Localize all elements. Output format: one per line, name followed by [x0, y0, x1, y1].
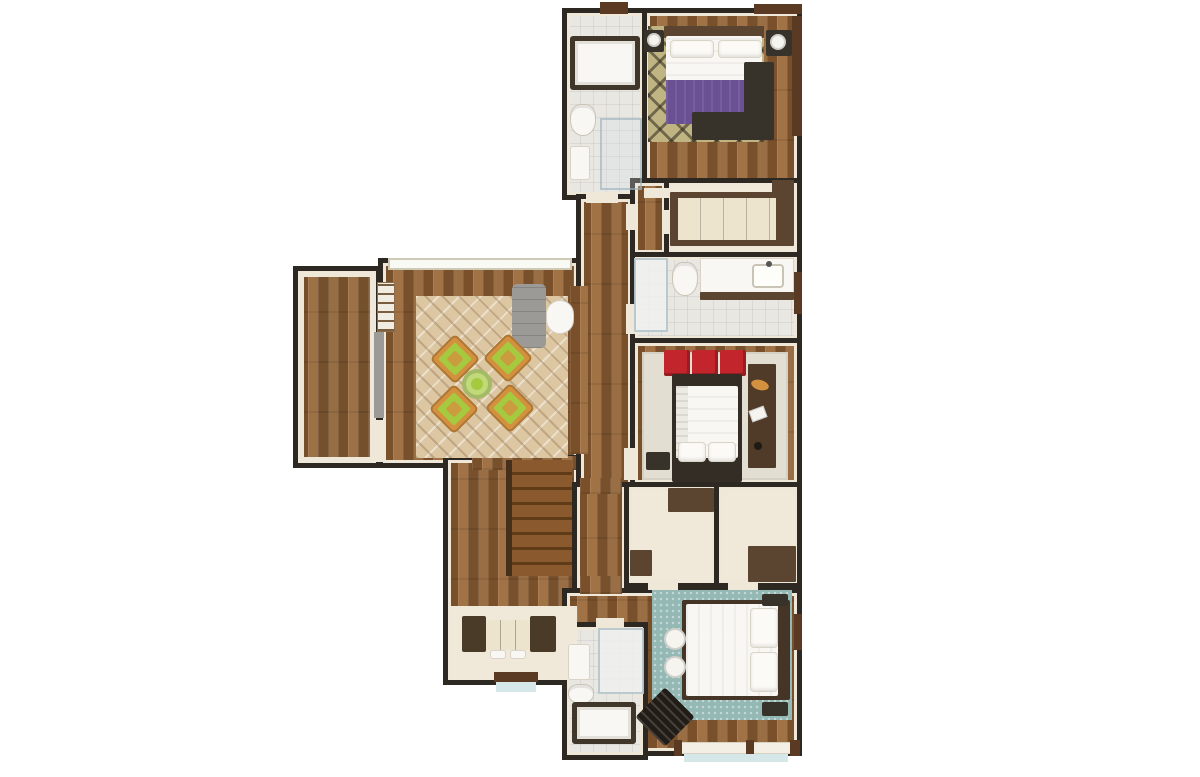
console-drawers — [486, 620, 530, 650]
door-bedroom-top — [644, 188, 670, 198]
coffee-table — [462, 369, 492, 399]
opening-hallway-corridor — [580, 478, 622, 494]
door-terrace — [372, 420, 386, 462]
window-living — [388, 258, 572, 270]
nightstand-middle — [646, 452, 670, 470]
wall-shelf — [377, 282, 395, 332]
gray-bench — [512, 284, 546, 348]
console-right — [530, 616, 556, 652]
window-bathroom-middle-icon — [794, 272, 802, 314]
console-tray-1 — [490, 650, 506, 659]
terrace-door-leaf — [374, 332, 384, 418]
side-table-white — [546, 300, 574, 334]
window-bottom-post-1 — [674, 740, 682, 756]
pillow-middle-2 — [708, 442, 736, 462]
pouf-2 — [664, 656, 686, 678]
storage-left-step — [630, 550, 652, 576]
bench-horizontal — [692, 112, 774, 140]
pillow-bottom-2 — [750, 652, 778, 692]
sink-middle — [752, 264, 784, 288]
door-closet-small — [626, 204, 638, 230]
shower-middle — [634, 258, 668, 332]
red-cushion-3 — [720, 350, 746, 376]
red-cushion-1 — [664, 350, 690, 376]
sink-top — [570, 146, 590, 180]
pillow-top-1 — [670, 40, 714, 58]
shower-glass-top — [600, 118, 642, 190]
entry-threshold — [494, 672, 538, 682]
lamp-left-icon — [647, 33, 661, 47]
toilet-top — [570, 104, 596, 136]
console-left — [462, 616, 486, 652]
window-bedroom-bottom-side-icon — [794, 614, 802, 650]
wardrobe-front — [678, 198, 776, 240]
shower-bottom — [598, 628, 644, 694]
toilet-bottom — [568, 684, 594, 704]
wardrobe-top-box — [772, 180, 794, 194]
door-bathroom-top — [586, 193, 618, 203]
sink-bottom — [568, 644, 590, 680]
opening-corridor-bedroom-bottom — [580, 576, 622, 594]
bathtub-bottom — [572, 702, 636, 744]
door-bedroom-middle — [624, 448, 636, 480]
desk-accessory-icon — [754, 442, 762, 450]
storage-left-cabinet — [668, 488, 714, 512]
pillow-bottom-1 — [750, 608, 778, 648]
window-bedroom-top-icon — [792, 16, 802, 136]
storage-right-chest — [748, 546, 796, 582]
nightstand-bottom-top — [762, 594, 788, 606]
pillow-middle-1 — [678, 442, 706, 462]
console-tray-2 — [510, 650, 526, 659]
window-bottom-sill — [676, 742, 796, 754]
door-storage-left — [648, 578, 678, 590]
pouf-1 — [664, 628, 686, 650]
bathtub-top — [570, 36, 640, 90]
window-bottom-post-3 — [790, 740, 800, 756]
window-bottom-glass — [684, 754, 788, 762]
floor-plan — [0, 0, 1200, 777]
balcony-frame-icon — [754, 4, 802, 14]
room-terrace — [293, 266, 381, 468]
vanity-cabinet-edge — [700, 292, 794, 300]
lamp-right-icon — [770, 34, 786, 50]
pillow-top-2 — [718, 40, 762, 58]
staircase — [506, 460, 572, 576]
faucet-icon — [766, 261, 772, 267]
window-bathroom-top-icon — [600, 2, 628, 14]
entry-glass — [496, 682, 536, 692]
toilet-middle — [672, 262, 698, 296]
nightstand-bottom-bottom — [762, 702, 788, 716]
red-cushion-2 — [692, 350, 718, 376]
